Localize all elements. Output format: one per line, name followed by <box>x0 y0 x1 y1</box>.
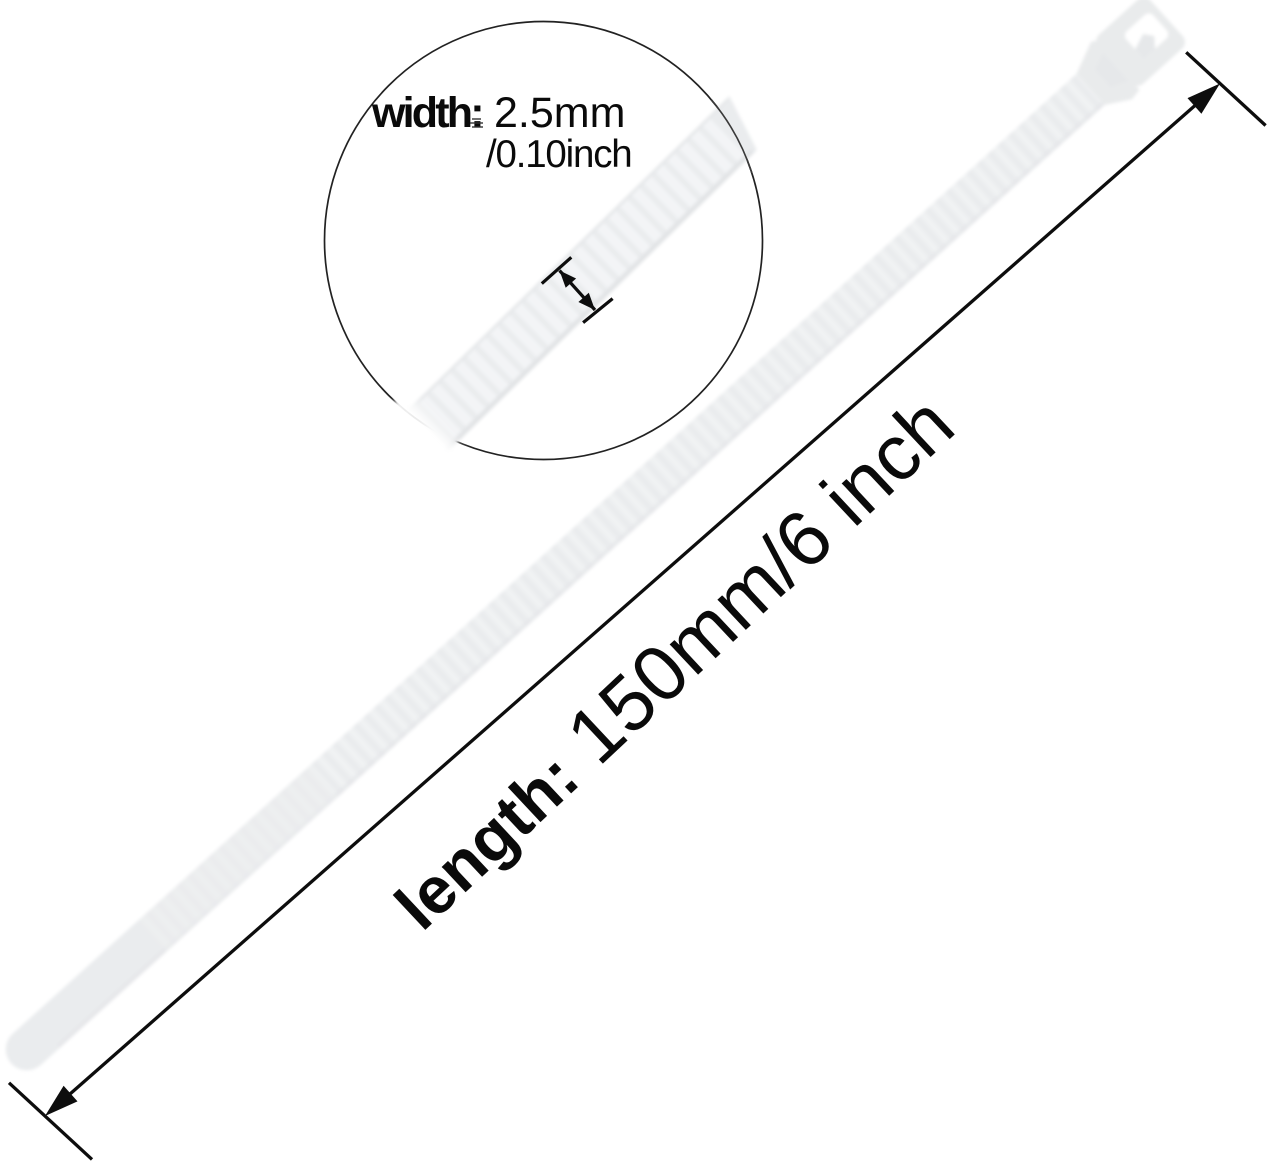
svg-text:width:2.5mm: width:2.5mm <box>371 89 625 137</box>
svg-text:/0.10inch: /0.10inch <box>486 133 631 176</box>
